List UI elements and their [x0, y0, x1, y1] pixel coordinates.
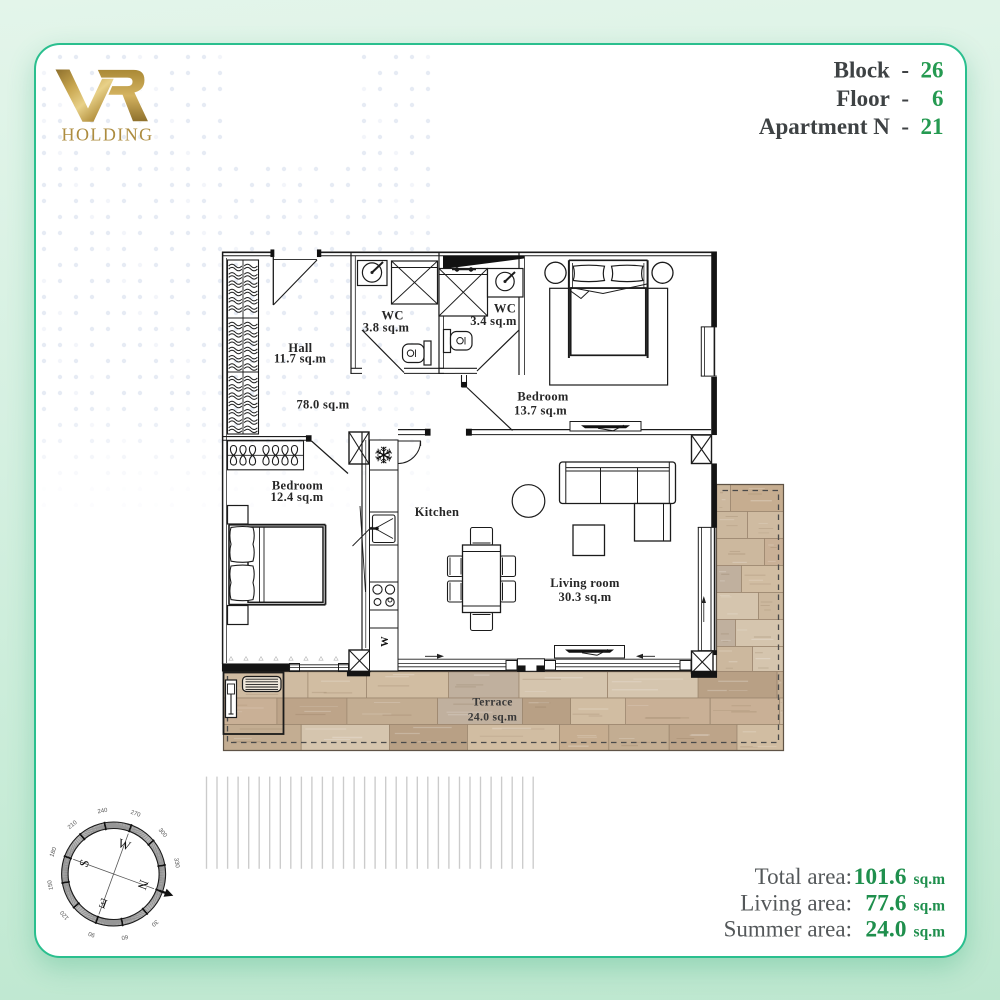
svg-text:Bedroom: Bedroom — [517, 390, 568, 404]
svg-text:S: S — [76, 857, 93, 869]
svg-text:26: 26 — [921, 58, 944, 83]
svg-text:Kitchen: Kitchen — [415, 505, 459, 519]
svg-text:24.0 sq.m: 24.0 sq.m — [468, 711, 517, 724]
svg-text:E: E — [96, 895, 109, 912]
svg-text:120: 120 — [59, 909, 70, 921]
svg-text:90: 90 — [87, 930, 96, 938]
svg-text:Living room: Living room — [550, 576, 620, 590]
svg-text:300: 300 — [157, 827, 168, 839]
svg-text:6: 6 — [932, 86, 944, 111]
svg-text:sq.m: sq.m — [914, 924, 946, 941]
svg-text:Floor -: Floor - — [836, 86, 909, 111]
svg-text:270: 270 — [130, 810, 142, 819]
svg-text:330: 330 — [172, 858, 180, 870]
svg-text:12.4 sq.m: 12.4 sq.m — [270, 490, 323, 504]
svg-text:Total area:: Total area: — [755, 864, 852, 889]
svg-text:21: 21 — [921, 114, 944, 139]
svg-text:11.7 sq.m: 11.7 sq.m — [274, 352, 327, 366]
svg-text:3.8 sq.m: 3.8 sq.m — [363, 321, 410, 335]
svg-text:77.6: 77.6 — [865, 890, 906, 916]
svg-text:Summer area:: Summer area: — [724, 917, 852, 942]
svg-text:78.0 sq.m: 78.0 sq.m — [296, 398, 349, 412]
svg-text:HOLDING: HOLDING — [62, 125, 154, 145]
svg-text:Apartment N -: Apartment N - — [759, 114, 909, 139]
svg-text:W: W — [116, 835, 133, 854]
svg-text:150: 150 — [47, 879, 55, 891]
svg-text:24.0: 24.0 — [865, 917, 906, 943]
svg-text:240: 240 — [97, 808, 109, 816]
svg-text:60: 60 — [120, 933, 128, 940]
svg-text:30.3 sq.m: 30.3 sq.m — [558, 590, 611, 604]
svg-text:30: 30 — [149, 918, 158, 927]
svg-text:Living area:: Living area: — [740, 890, 852, 915]
svg-text:N: N — [134, 878, 152, 893]
svg-text:sq.m: sq.m — [914, 897, 946, 914]
svg-text:3.4 sq.m: 3.4 sq.m — [470, 314, 517, 328]
svg-text:210: 210 — [67, 819, 79, 830]
svg-text:W: W — [380, 636, 391, 647]
svg-text:180: 180 — [49, 846, 58, 858]
svg-text:101.6: 101.6 — [854, 864, 907, 890]
svg-text:sq.m: sq.m — [914, 871, 946, 888]
svg-text:Block -: Block - — [834, 58, 909, 83]
svg-text:Terrace: Terrace — [472, 696, 512, 709]
svg-text:13.7 sq.m: 13.7 sq.m — [514, 404, 567, 418]
